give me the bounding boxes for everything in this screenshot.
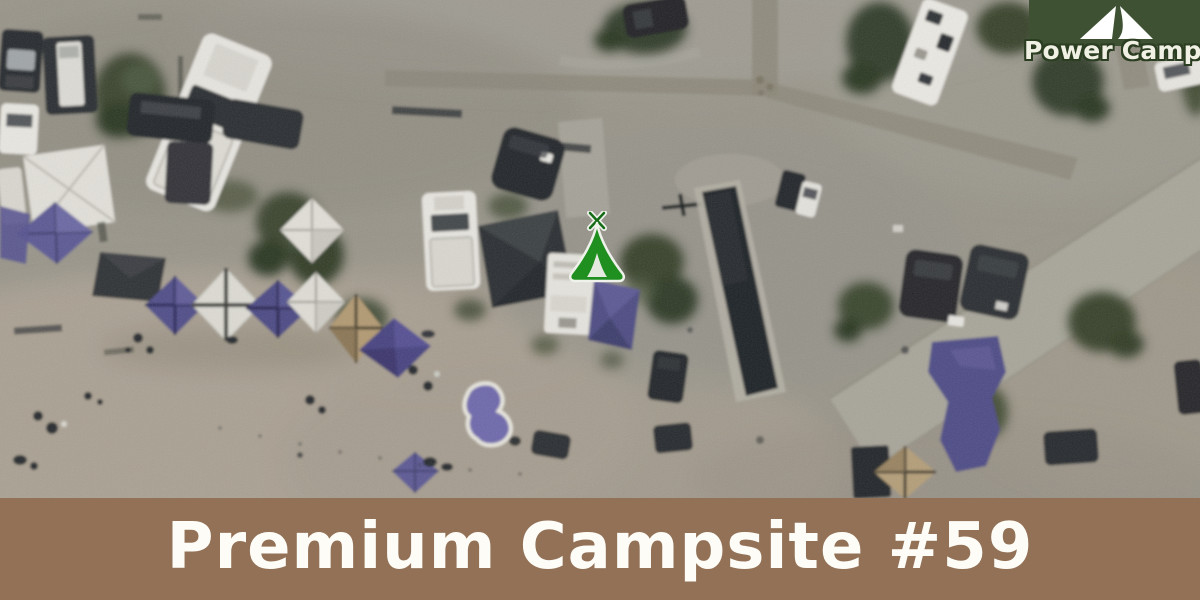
- campsite-marker[interactable]: [566, 211, 628, 285]
- campsite-detail-screen: Power Camper Premium Campsite #59: [0, 0, 1200, 600]
- campsite-title: Premium Campsite #59: [167, 515, 1034, 579]
- info-banner: Premium Campsite #59: [0, 498, 1200, 600]
- tent-marker-icon: [566, 211, 628, 285]
- brand-logo: Power Camper: [1025, 0, 1200, 70]
- brand-name: Power Camper: [1024, 36, 1199, 65]
